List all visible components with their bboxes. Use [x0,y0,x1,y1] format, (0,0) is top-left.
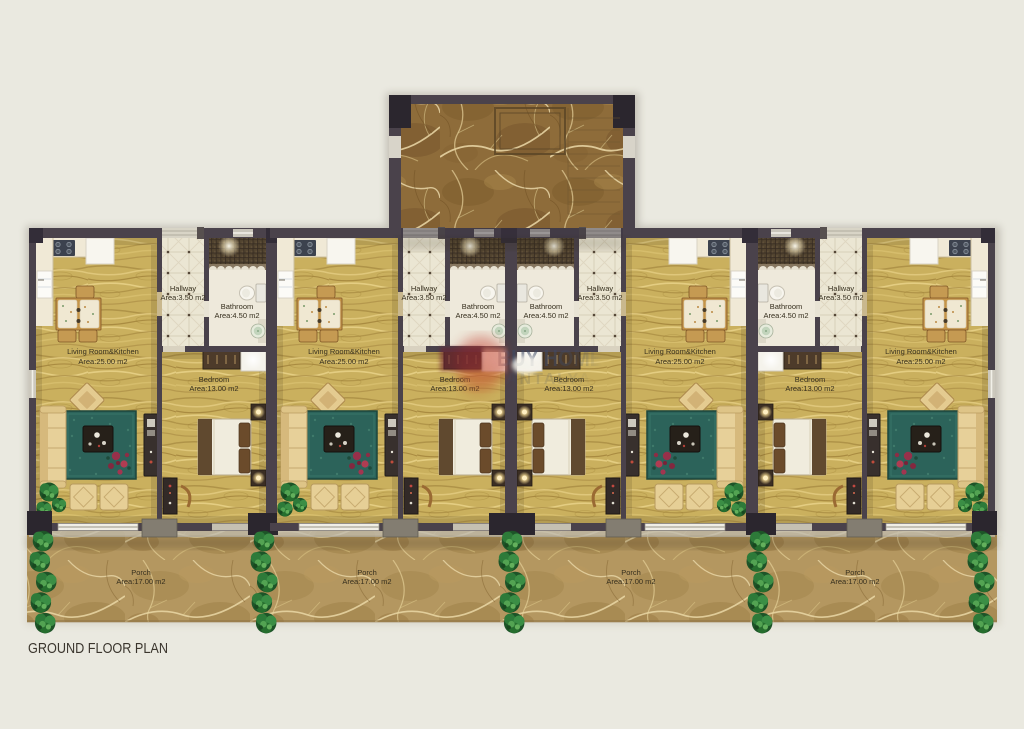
svg-text:Bathroom: Bathroom [530,302,563,311]
svg-text:Living Room&Kitchen: Living Room&Kitchen [67,347,139,356]
svg-text:Area:4.50 m2: Area:4.50 m2 [763,311,808,320]
svg-text:Bathroom: Bathroom [770,302,803,311]
svg-text:Living Room&Kitchen: Living Room&Kitchen [644,347,716,356]
svg-text:Living Room&Kitchen: Living Room&Kitchen [885,347,957,356]
svg-text:Area:4.50 m2: Area:4.50 m2 [523,311,568,320]
svg-text:Area:3.50 m2: Area:3.50 m2 [401,293,446,302]
svg-text:ANTALYA: ANTALYA [506,371,592,388]
svg-text:GROUND FLOOR PLAN: GROUND FLOOR PLAN [28,640,168,657]
svg-text:Bathroom: Bathroom [221,302,254,311]
svg-text:Hallway: Hallway [587,284,614,293]
svg-text:Bedroom: Bedroom [795,375,825,384]
svg-text:Bedroom: Bedroom [199,375,229,384]
svg-text:Area:25.00 m2: Area:25.00 m2 [319,357,368,366]
svg-text:Area:17.00 m2: Area:17.00 m2 [116,577,165,586]
svg-text:Hallway: Hallway [411,284,438,293]
svg-text:Area:17.00 m2: Area:17.00 m2 [830,577,879,586]
svg-text:Porch: Porch [357,568,377,577]
svg-text:Living Room&Kitchen: Living Room&Kitchen [308,347,380,356]
svg-text:Area:17.00 m2: Area:17.00 m2 [342,577,391,586]
svg-text:Area:25.00 m2: Area:25.00 m2 [896,357,945,366]
svg-text:Porch: Porch [621,568,641,577]
svg-text:Hallway: Hallway [170,284,197,293]
svg-text:Area:4.50 m2: Area:4.50 m2 [214,311,259,320]
svg-text:Porch: Porch [131,568,151,577]
svg-text:Area:13.00 m2: Area:13.00 m2 [189,384,238,393]
svg-text:Porch: Porch [845,568,865,577]
svg-text:Area:3.50 m2: Area:3.50 m2 [577,293,622,302]
svg-text:Area:25.00 m2: Area:25.00 m2 [655,357,704,366]
svg-text:Area:4.50 m2: Area:4.50 m2 [455,311,500,320]
svg-text:Area:17.00 m2: Area:17.00 m2 [606,577,655,586]
svg-text:Hallway: Hallway [828,284,855,293]
svg-text:Area:3.50 m2: Area:3.50 m2 [818,293,863,302]
svg-text:Area:3.50 m2: Area:3.50 m2 [160,293,205,302]
svg-text:Area:13.00 m2: Area:13.00 m2 [785,384,834,393]
svg-text:Bathroom: Bathroom [462,302,495,311]
svg-text:Area:25.00 m2: Area:25.00 m2 [78,357,127,366]
